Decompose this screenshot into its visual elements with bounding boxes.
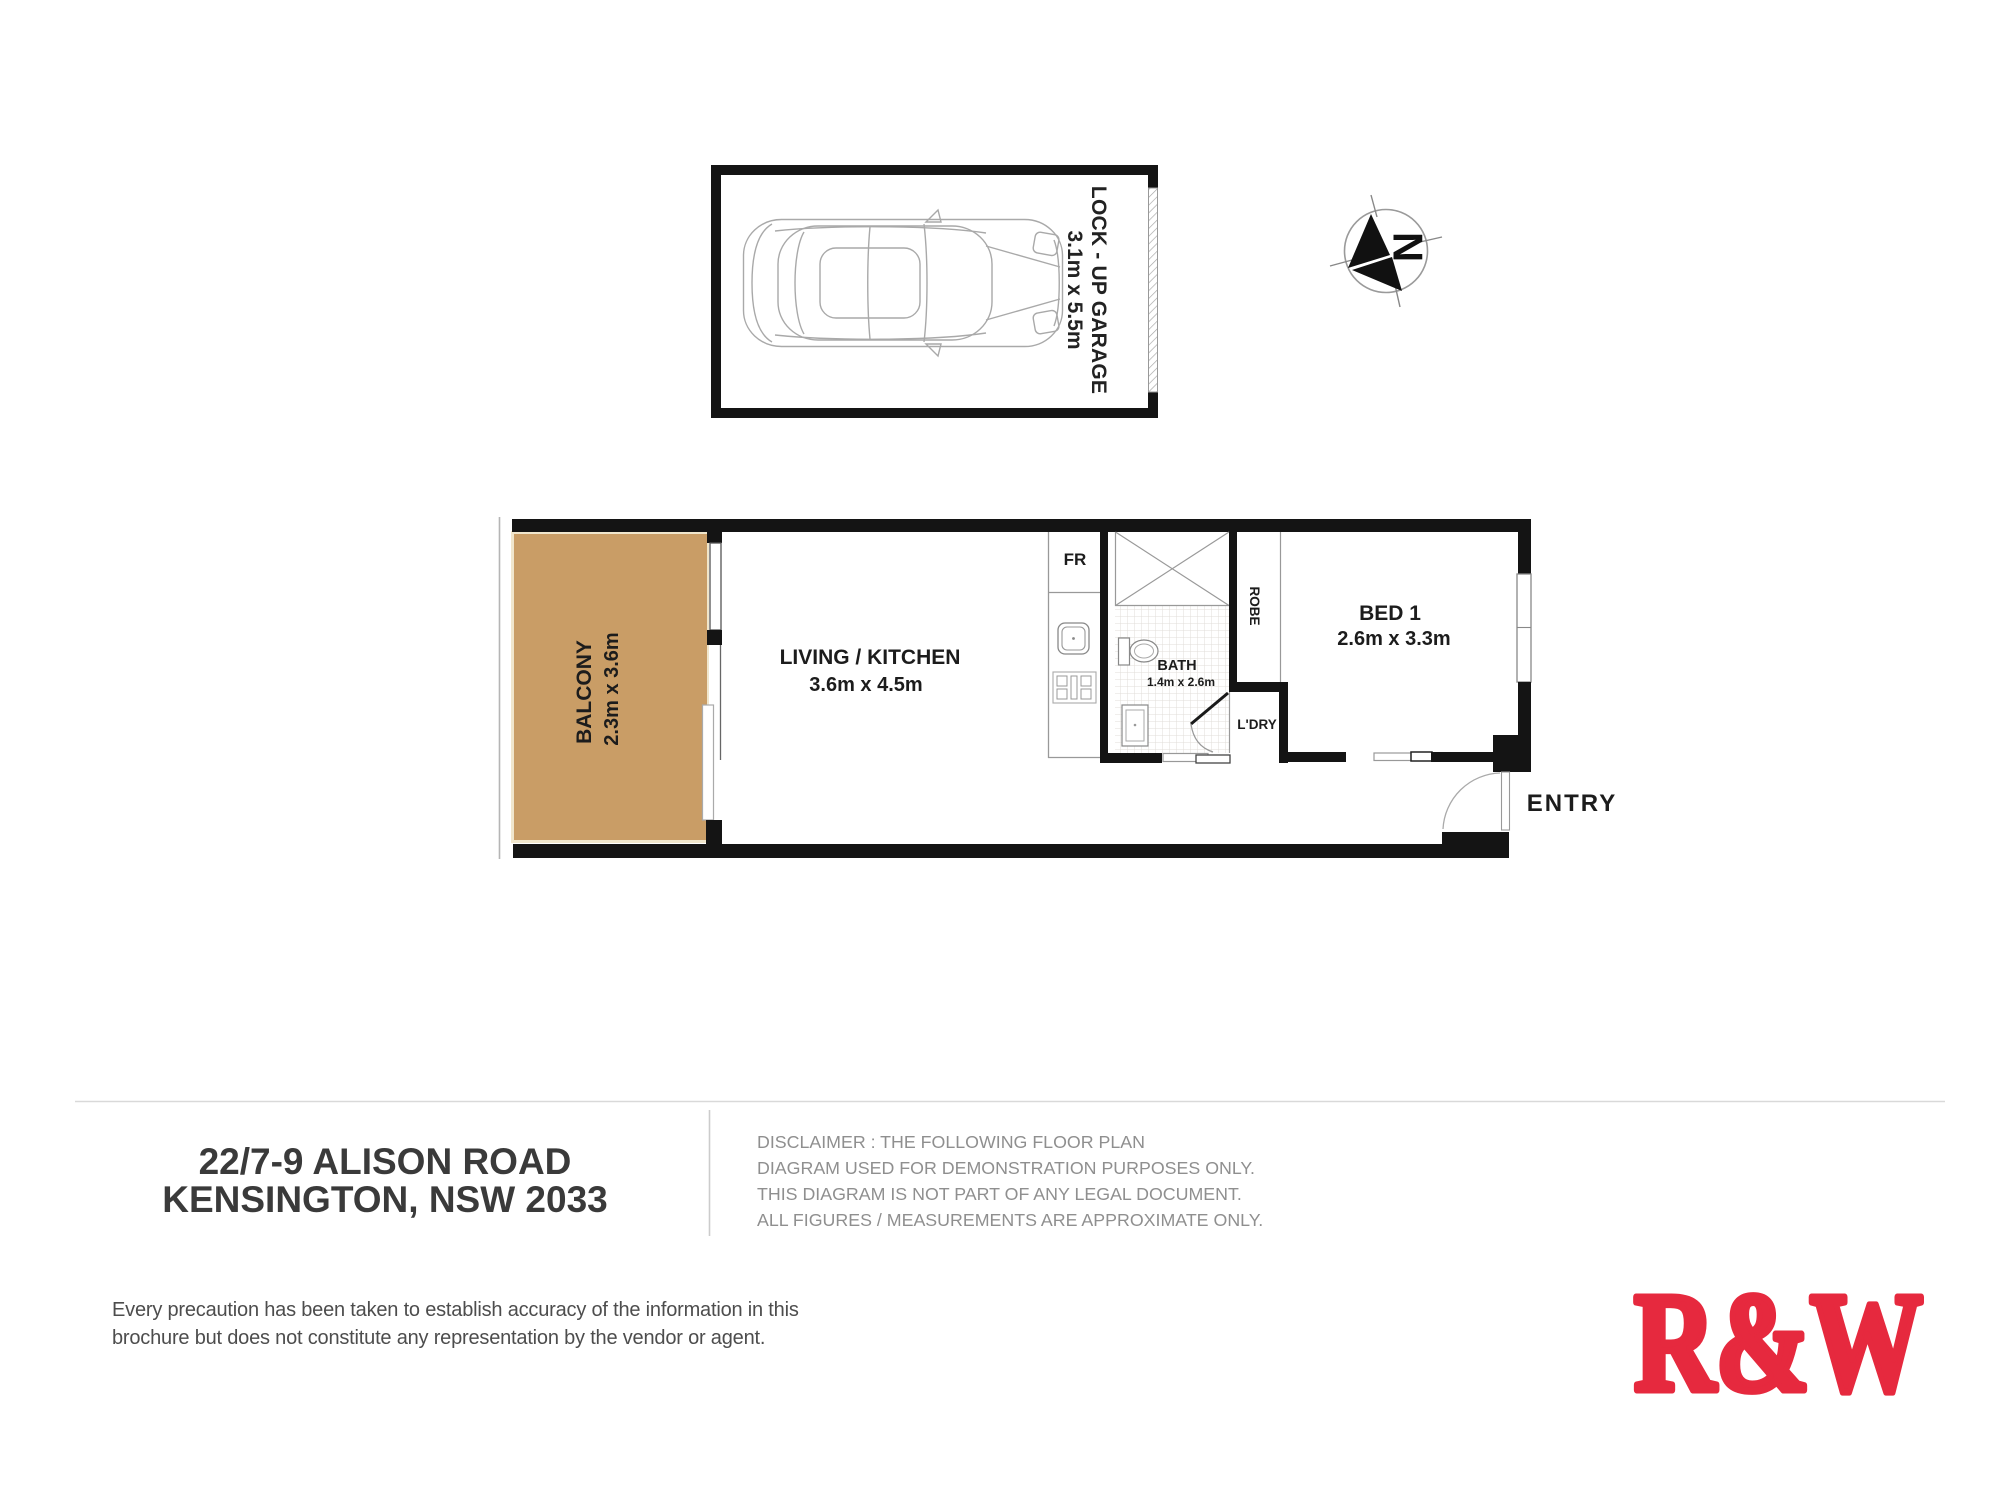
svg-text:BED 1: BED 1 — [1359, 602, 1421, 625]
svg-text:LIVING / KITCHEN: LIVING / KITCHEN — [780, 646, 961, 669]
svg-text:LOCK - UP GARAGE: LOCK - UP GARAGE — [1087, 186, 1110, 394]
svg-text:1.4m x 2.6m: 1.4m x 2.6m — [1147, 675, 1215, 689]
svg-text:DISCLAIMER : THE FOLLOWING FLO: DISCLAIMER : THE FOLLOWING FLOOR PLAN — [757, 1132, 1145, 1152]
svg-text:BATH: BATH — [1157, 658, 1196, 674]
svg-text:brochure but does not constitu: brochure but does not constitute any rep… — [112, 1327, 765, 1349]
svg-text:Every precaution has been take: Every precaution has been taken to estab… — [112, 1299, 799, 1321]
svg-text:THIS DIAGRAM IS NOT PART OF AN: THIS DIAGRAM IS NOT PART OF ANY LEGAL DO… — [757, 1184, 1242, 1204]
svg-text:3.1m x 5.5m: 3.1m x 5.5m — [1063, 230, 1086, 349]
svg-text:R&W: R&W — [1634, 1263, 1923, 1421]
svg-text:3.6m x 4.5m: 3.6m x 4.5m — [809, 674, 922, 696]
svg-text:2.3m x 3.6m: 2.3m x 3.6m — [601, 632, 623, 745]
svg-text:ENTRY: ENTRY — [1527, 790, 1617, 817]
svg-text:DIAGRAM USED FOR DEMONSTRATION: DIAGRAM USED FOR DEMONSTRATION PURPOSES … — [757, 1158, 1255, 1178]
svg-text:N: N — [1385, 232, 1432, 262]
svg-text:L'DRY: L'DRY — [1237, 717, 1276, 732]
svg-text:ALL FIGURES / MEASUREMENTS ARE: ALL FIGURES / MEASUREMENTS ARE APPROXIMA… — [757, 1210, 1263, 1230]
svg-text:KENSINGTON, NSW 2033: KENSINGTON, NSW 2033 — [162, 1179, 607, 1220]
svg-text:2.6m x 3.3m: 2.6m x 3.3m — [1337, 628, 1450, 650]
svg-text:BALCONY: BALCONY — [573, 640, 596, 744]
svg-text:22/7-9 ALISON ROAD: 22/7-9 ALISON ROAD — [199, 1141, 572, 1182]
svg-text:ROBE: ROBE — [1247, 586, 1262, 625]
svg-text:FR: FR — [1064, 550, 1087, 569]
